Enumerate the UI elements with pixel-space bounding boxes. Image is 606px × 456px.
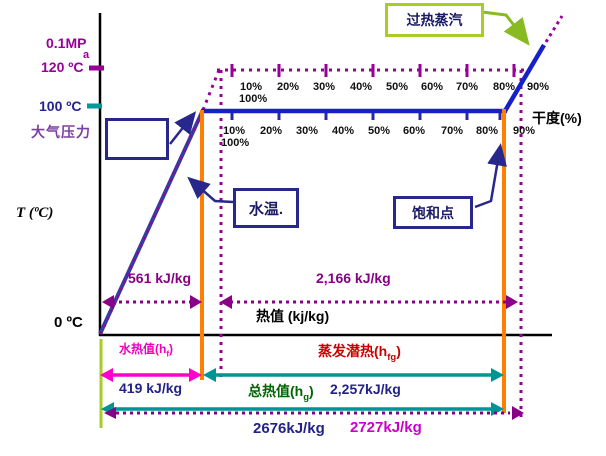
total-2727-label: 2727kJ/kg: [350, 420, 422, 436]
superheated-steam-label: 过热蒸汽: [407, 10, 463, 30]
dryness-upper-90: 90%: [520, 81, 556, 93]
water-temperature-box: 水温.: [233, 188, 299, 228]
x-axis-title: 热值 (kj/kg): [256, 309, 329, 324]
saturation-point-box: 饱和点: [393, 196, 473, 229]
dryness-lower-100: 100%: [221, 138, 249, 150]
dryness-lower-60: 60%: [396, 125, 432, 137]
saturation-arrow: [475, 148, 500, 207]
arrow-2676: [101, 402, 504, 416]
axes: [99, 13, 552, 336]
superheat-arrow: [482, 12, 526, 41]
total-2676-label: 2676kJ/kg: [253, 421, 325, 437]
dryness-upper-row: 10% 20% 30% 40% 50% 60% 70% 80% 90%: [0, 81, 606, 95]
saturation-point-label: 饱和点: [412, 203, 454, 223]
water-temperature-label: 水温.: [249, 198, 283, 219]
sensible-561-label: 561 kJ/kg: [128, 271, 191, 286]
dryness-lower-40: 40%: [325, 125, 361, 137]
dryness-lower-30: 30%: [289, 125, 325, 137]
sensible-419-label: 419 kJ/kg: [119, 381, 182, 396]
dryness-lower-20: 20%: [253, 125, 289, 137]
total-heat-label: 总热值(hg): [248, 384, 314, 403]
enthalpy-temperature-diagram: 0.1MP a 120 ºC 100 ºC 大气压力 T (ºC) 0 ºC 过…: [0, 0, 606, 456]
latent-2166-label: 2,166 kJ/kg: [316, 271, 391, 286]
dryness-lower-10: 10%: [216, 125, 252, 137]
y-axis-title: T (ºC): [16, 206, 53, 222]
superheated-steam-box: 过热蒸汽: [385, 3, 484, 37]
dryness-lower-50: 50%: [361, 125, 397, 137]
dryness-lower-80: 80%: [469, 125, 505, 137]
dryness-upper-50: 50%: [379, 81, 415, 93]
superheat-line: [505, 45, 544, 111]
arrow-2166: [220, 295, 518, 309]
dryness-upper-60: 60%: [414, 81, 450, 93]
latent-heat-label: 蒸发潜热(hfg): [318, 344, 401, 363]
dryness-upper-40: 40%: [343, 81, 379, 93]
temp-100-label: 100 ºC: [39, 99, 81, 114]
dryness-upper-70: 70%: [449, 81, 485, 93]
pressure-label-sub: a: [83, 50, 89, 62]
dryness-lower-70: 70%: [434, 125, 470, 137]
dryness-axis-label: 干度(%): [532, 111, 582, 126]
origin-label: 0 ºC: [54, 315, 83, 331]
dryness-upper-80: 80%: [486, 81, 522, 93]
arrow-2257: [203, 368, 504, 382]
dryness-upper-10: 10%: [233, 81, 269, 93]
temp-120-label: 120 ºC: [41, 60, 83, 75]
dryness-lower-row: 10% 20% 30% 40% 50% 60% 70% 80% 90%: [0, 125, 606, 139]
water-heat-label: 水热值(hf): [119, 343, 173, 359]
dryness-upper-100: 100%: [239, 94, 267, 106]
latent-2257-label: 2,257kJ/kg: [330, 382, 401, 397]
water-temp-arrow: [191, 180, 233, 202]
dryness-lower-90: 90%: [506, 125, 542, 137]
dryness-upper-30: 30%: [306, 81, 342, 93]
dryness-upper-20: 20%: [270, 81, 306, 93]
pressure-label: 0.1MP: [46, 36, 86, 51]
